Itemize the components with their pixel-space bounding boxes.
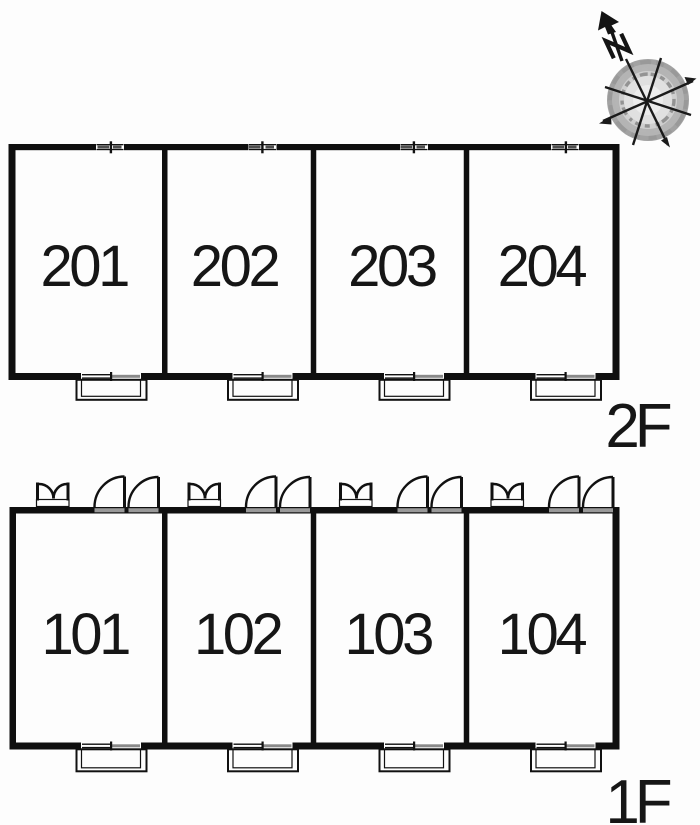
svg-text:202: 202 bbox=[191, 234, 279, 299]
svg-text:203: 203 bbox=[348, 234, 436, 299]
svg-text:201: 201 bbox=[40, 234, 128, 299]
svg-text:103: 103 bbox=[344, 602, 432, 667]
svg-text:101: 101 bbox=[41, 602, 129, 667]
svg-text:2F: 2F bbox=[605, 392, 670, 461]
svg-text:104: 104 bbox=[498, 602, 587, 667]
svg-text:1F: 1F bbox=[605, 768, 670, 825]
svg-text:102: 102 bbox=[194, 602, 282, 667]
svg-text:204: 204 bbox=[498, 234, 587, 299]
